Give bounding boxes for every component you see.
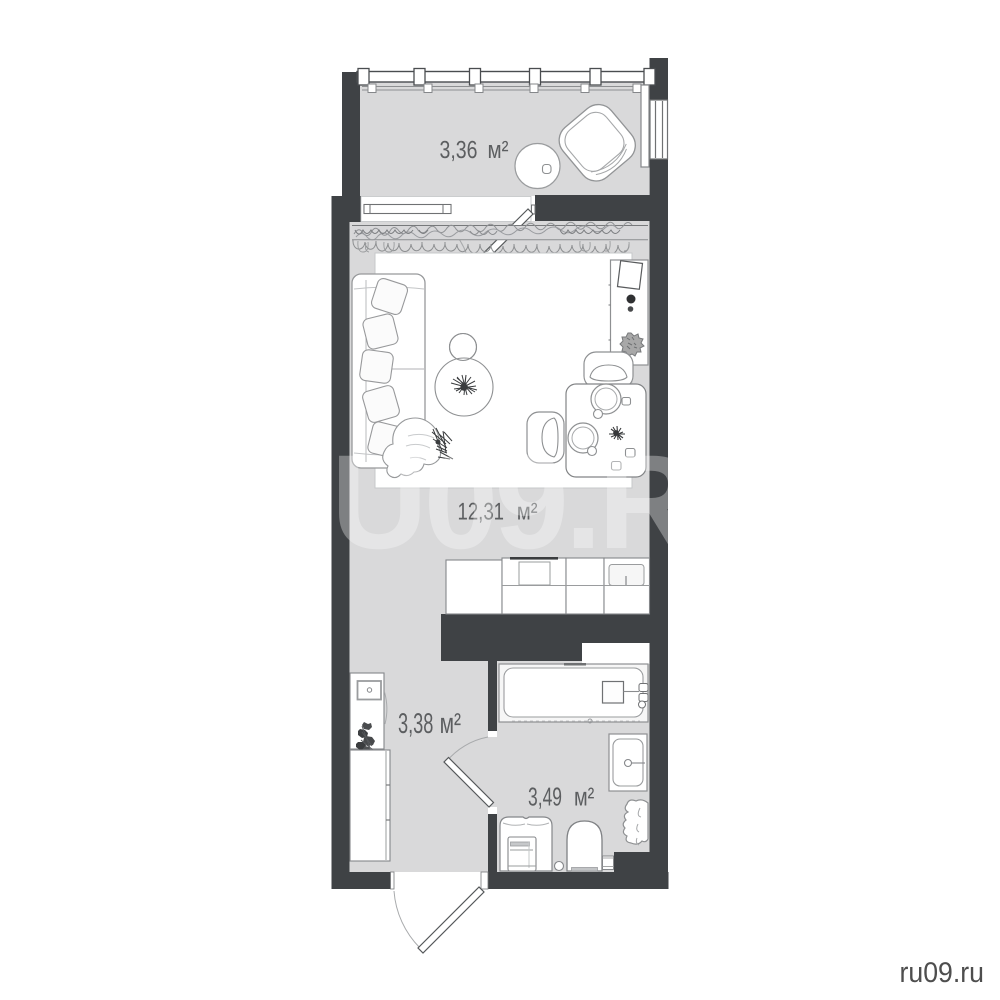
svg-text:ru09.ru: ru09.ru	[900, 957, 985, 989]
svg-text:3,38: 3,38	[398, 708, 433, 740]
svg-text:3,36: 3,36	[440, 137, 478, 164]
svg-text:м²: м²	[488, 137, 509, 164]
svg-text:м²: м²	[574, 784, 595, 812]
svg-text:3,49: 3,49	[528, 784, 562, 812]
svg-text:м²: м²	[440, 708, 461, 740]
svg-text:U09.RU: U09.RU	[331, 428, 784, 577]
